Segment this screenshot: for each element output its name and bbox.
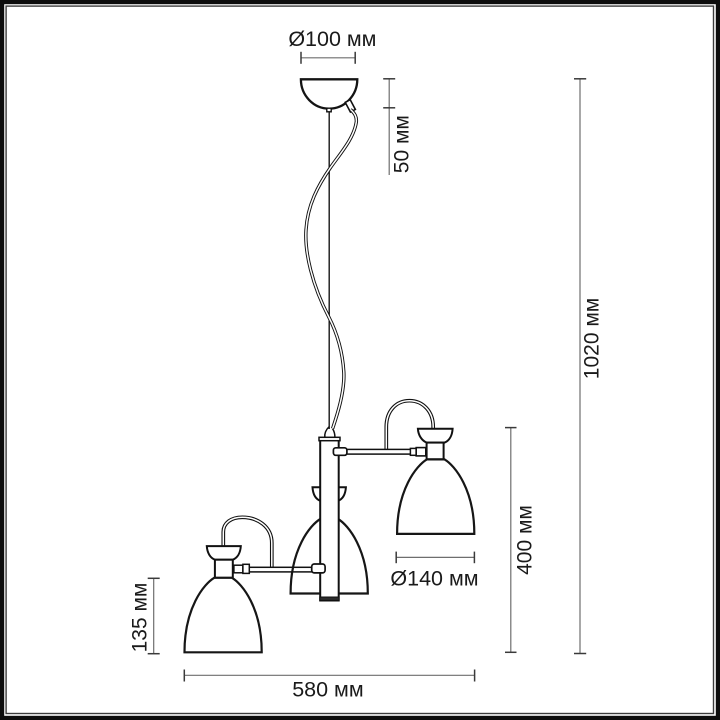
svg-text:400 мм: 400 мм xyxy=(514,505,537,575)
svg-text:Ø100 мм: Ø100 мм xyxy=(288,27,376,51)
svg-text:50 мм: 50 мм xyxy=(390,115,413,173)
svg-text:1020 мм: 1020 мм xyxy=(581,298,604,379)
svg-text:135 мм: 135 мм xyxy=(129,583,152,653)
svg-text:Ø140 мм: Ø140 мм xyxy=(390,567,478,591)
svg-text:580 мм: 580 мм xyxy=(292,677,363,701)
